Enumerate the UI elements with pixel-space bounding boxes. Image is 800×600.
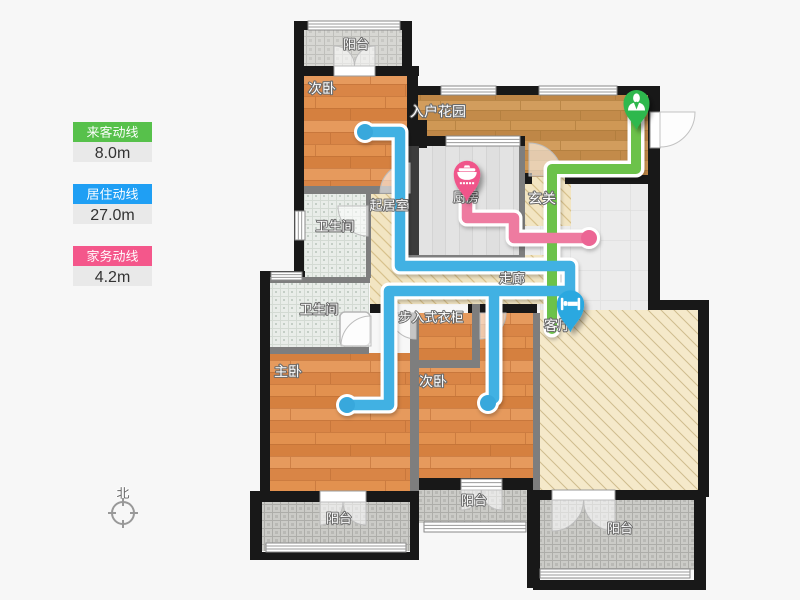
svg-text:8.0m: 8.0m bbox=[95, 145, 131, 162]
svg-text:27.0m: 27.0m bbox=[90, 207, 134, 224]
svg-text:4.2m: 4.2m bbox=[95, 269, 131, 286]
